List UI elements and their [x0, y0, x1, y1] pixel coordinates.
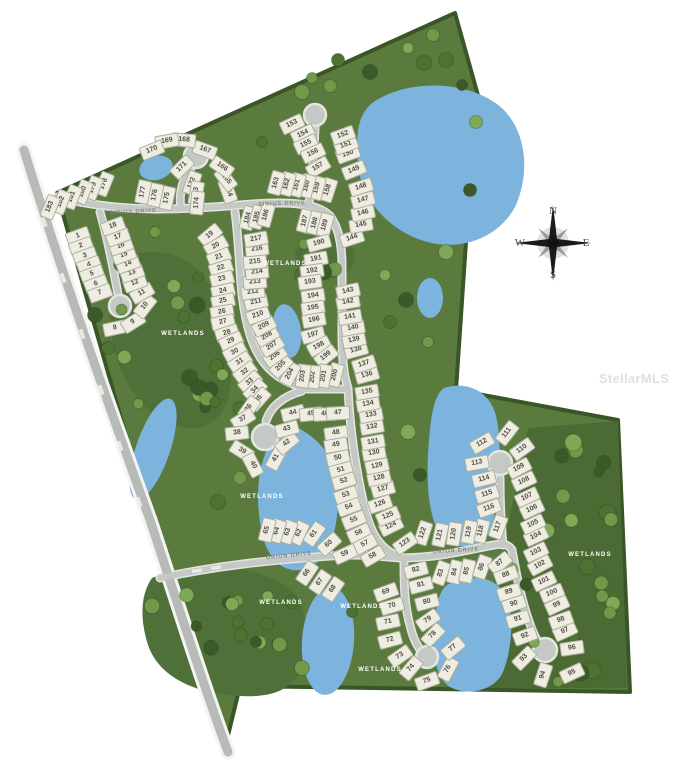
watermark: StellarMLS	[599, 371, 669, 386]
lot-47: 47	[326, 406, 351, 421]
wetlands-label: WETLANDS	[161, 331, 205, 337]
wetlands-label: WETLANDS	[259, 600, 303, 606]
wetlands-label: WETLANDS	[358, 667, 402, 673]
wetlands-label: WETLANDS	[240, 494, 284, 500]
compass-rose: N S W E	[508, 198, 598, 288]
compass-north-label: N	[549, 205, 557, 217]
compass-south-label: S	[550, 269, 556, 281]
lot-174: 174	[189, 190, 205, 215]
compass-west-label: W	[515, 237, 525, 249]
lot-38: 38	[224, 425, 249, 441]
wetlands-label: WETLANDS	[568, 552, 612, 558]
wetlands-label: WETLANDS	[340, 604, 384, 610]
compass-east-label: E	[583, 237, 590, 249]
wetlands-label: WETLANDS	[263, 261, 307, 267]
site-plan-map: 1234567891011121314151617181920212223242…	[0, 0, 678, 768]
